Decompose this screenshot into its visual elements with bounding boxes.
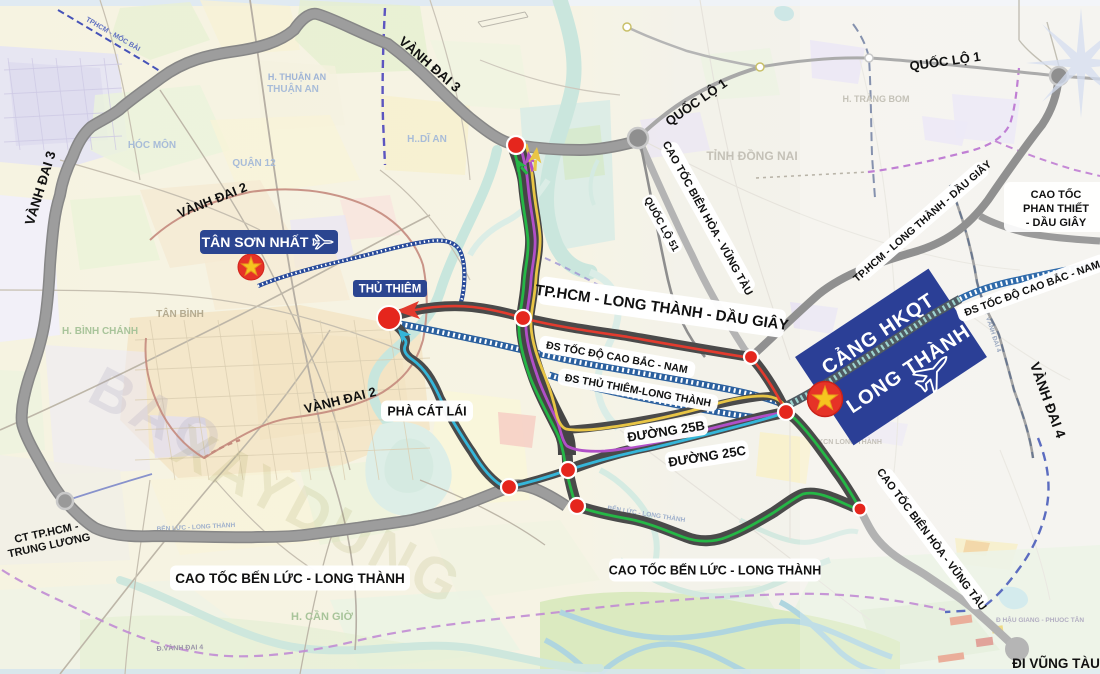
svg-text:PHAN THIẾT: PHAN THIẾT — [1023, 202, 1089, 215]
svg-text:ĐI VŨNG TÀU: ĐI VŨNG TÀU — [1012, 656, 1100, 671]
svg-text:CAO TỐC BẾN LỨC - LONG THÀNH: CAO TỐC BẾN LỨC - LONG THÀNH — [175, 571, 404, 586]
svg-text:H. CẦN GIỜ: H. CẦN GIỜ — [291, 610, 354, 623]
svg-text:TỈNH ĐỒNG NAI: TỈNH ĐỒNG NAI — [706, 148, 797, 163]
svg-text:CAO TỐC: CAO TỐC — [1031, 187, 1082, 201]
svg-text:PHÀ CÁT LÁI: PHÀ CÁT LÁI — [387, 404, 466, 419]
svg-text:H. THUẬN AN: H. THUẬN AN — [268, 71, 326, 82]
svg-text:H..DĨ AN: H..DĨ AN — [407, 132, 447, 145]
svg-text:TÂN BÌNH: TÂN BÌNH — [156, 307, 204, 320]
svg-text:Đ HẬU GIANG - PHUOC TÂN: Đ HẬU GIANG - PHUOC TÂN — [996, 615, 1084, 624]
svg-text:H. TRẢNG BOM: H. TRẢNG BOM — [843, 93, 910, 104]
svg-text:- DẦU GIÂY: - DẦU GIÂY — [1026, 216, 1087, 229]
svg-text:QUẬN 12: QUẬN 12 — [232, 156, 276, 169]
svg-text:TÂN SƠN NHẤT: TÂN SƠN NHẤT — [202, 233, 309, 250]
svg-text:HÓC MÔN: HÓC MÔN — [128, 138, 176, 151]
svg-text:THUẬN AN: THUẬN AN — [267, 82, 319, 95]
svg-text:THỦ THIÊM: THỦ THIÊM — [359, 283, 422, 296]
svg-text:H. BÌNH CHÁNH: H. BÌNH CHÁNH — [62, 324, 138, 337]
svg-text:CAO TỐC BẾN LỨC - LONG THÀNH: CAO TỐC BẾN LỨC - LONG THÀNH — [609, 563, 821, 578]
